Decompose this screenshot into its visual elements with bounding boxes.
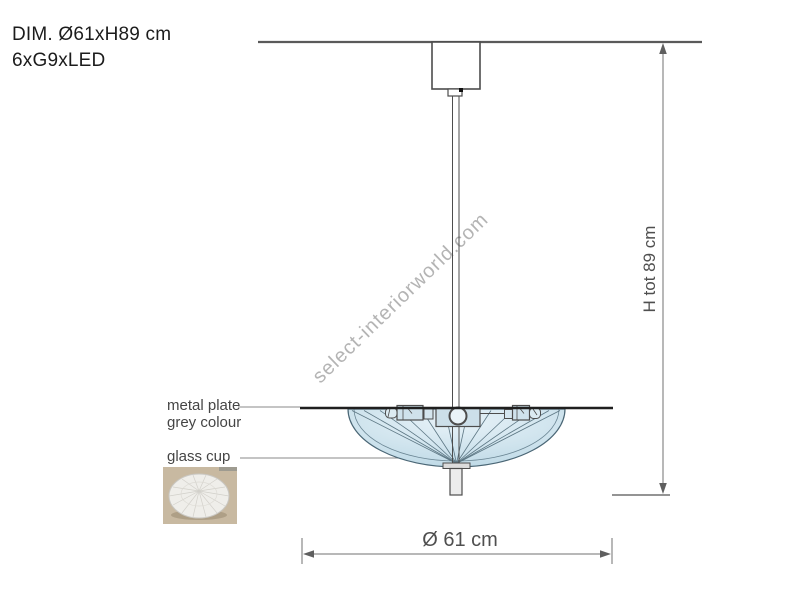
height-dim-arrow-bottom xyxy=(659,483,667,494)
product-dimension-diagram: select-interiorworld.com xyxy=(0,0,800,600)
hanging-rod xyxy=(453,96,460,408)
glass-cup-label-text: glass cup xyxy=(167,448,230,465)
total-height-text: H tot 89 cm xyxy=(640,226,659,313)
metal-plate-label-line1: metal plate xyxy=(167,397,240,414)
metal-plate-label: metal plate grey colour xyxy=(167,397,241,431)
glass-cup-thumbnail xyxy=(163,467,237,524)
thumbnail-corner-detail xyxy=(219,467,237,471)
glass-cup-photo xyxy=(163,467,237,524)
ceiling-canopy xyxy=(432,42,480,89)
lamp-technical-drawing xyxy=(0,0,800,600)
diameter-arrow-left xyxy=(303,550,314,557)
metal-plate-label-line2: grey colour xyxy=(167,414,241,431)
hub-ring xyxy=(450,408,467,425)
glass-cup-label: glass cup xyxy=(167,448,230,465)
diameter-dimension-label: Ø 61 cm xyxy=(395,529,525,552)
total-height-dimension-label: H tot 89 cm xyxy=(640,213,658,325)
finial-plate xyxy=(443,463,470,469)
dimension-header-line2: 6xG9xLED xyxy=(12,50,105,71)
dimension-header-line1: DIM. Ø61xH89 cm xyxy=(12,24,171,45)
ribbed-glass-dome xyxy=(169,474,229,518)
finial-tube xyxy=(450,469,462,496)
dimension-header: DIM. Ø61xH89 cm 6xG9xLED xyxy=(12,22,171,74)
canopy-set-screw xyxy=(459,88,463,92)
diameter-text: Ø 61 cm xyxy=(422,529,498,551)
diameter-arrow-right xyxy=(600,550,611,557)
height-dim-arrow-top xyxy=(659,43,667,54)
